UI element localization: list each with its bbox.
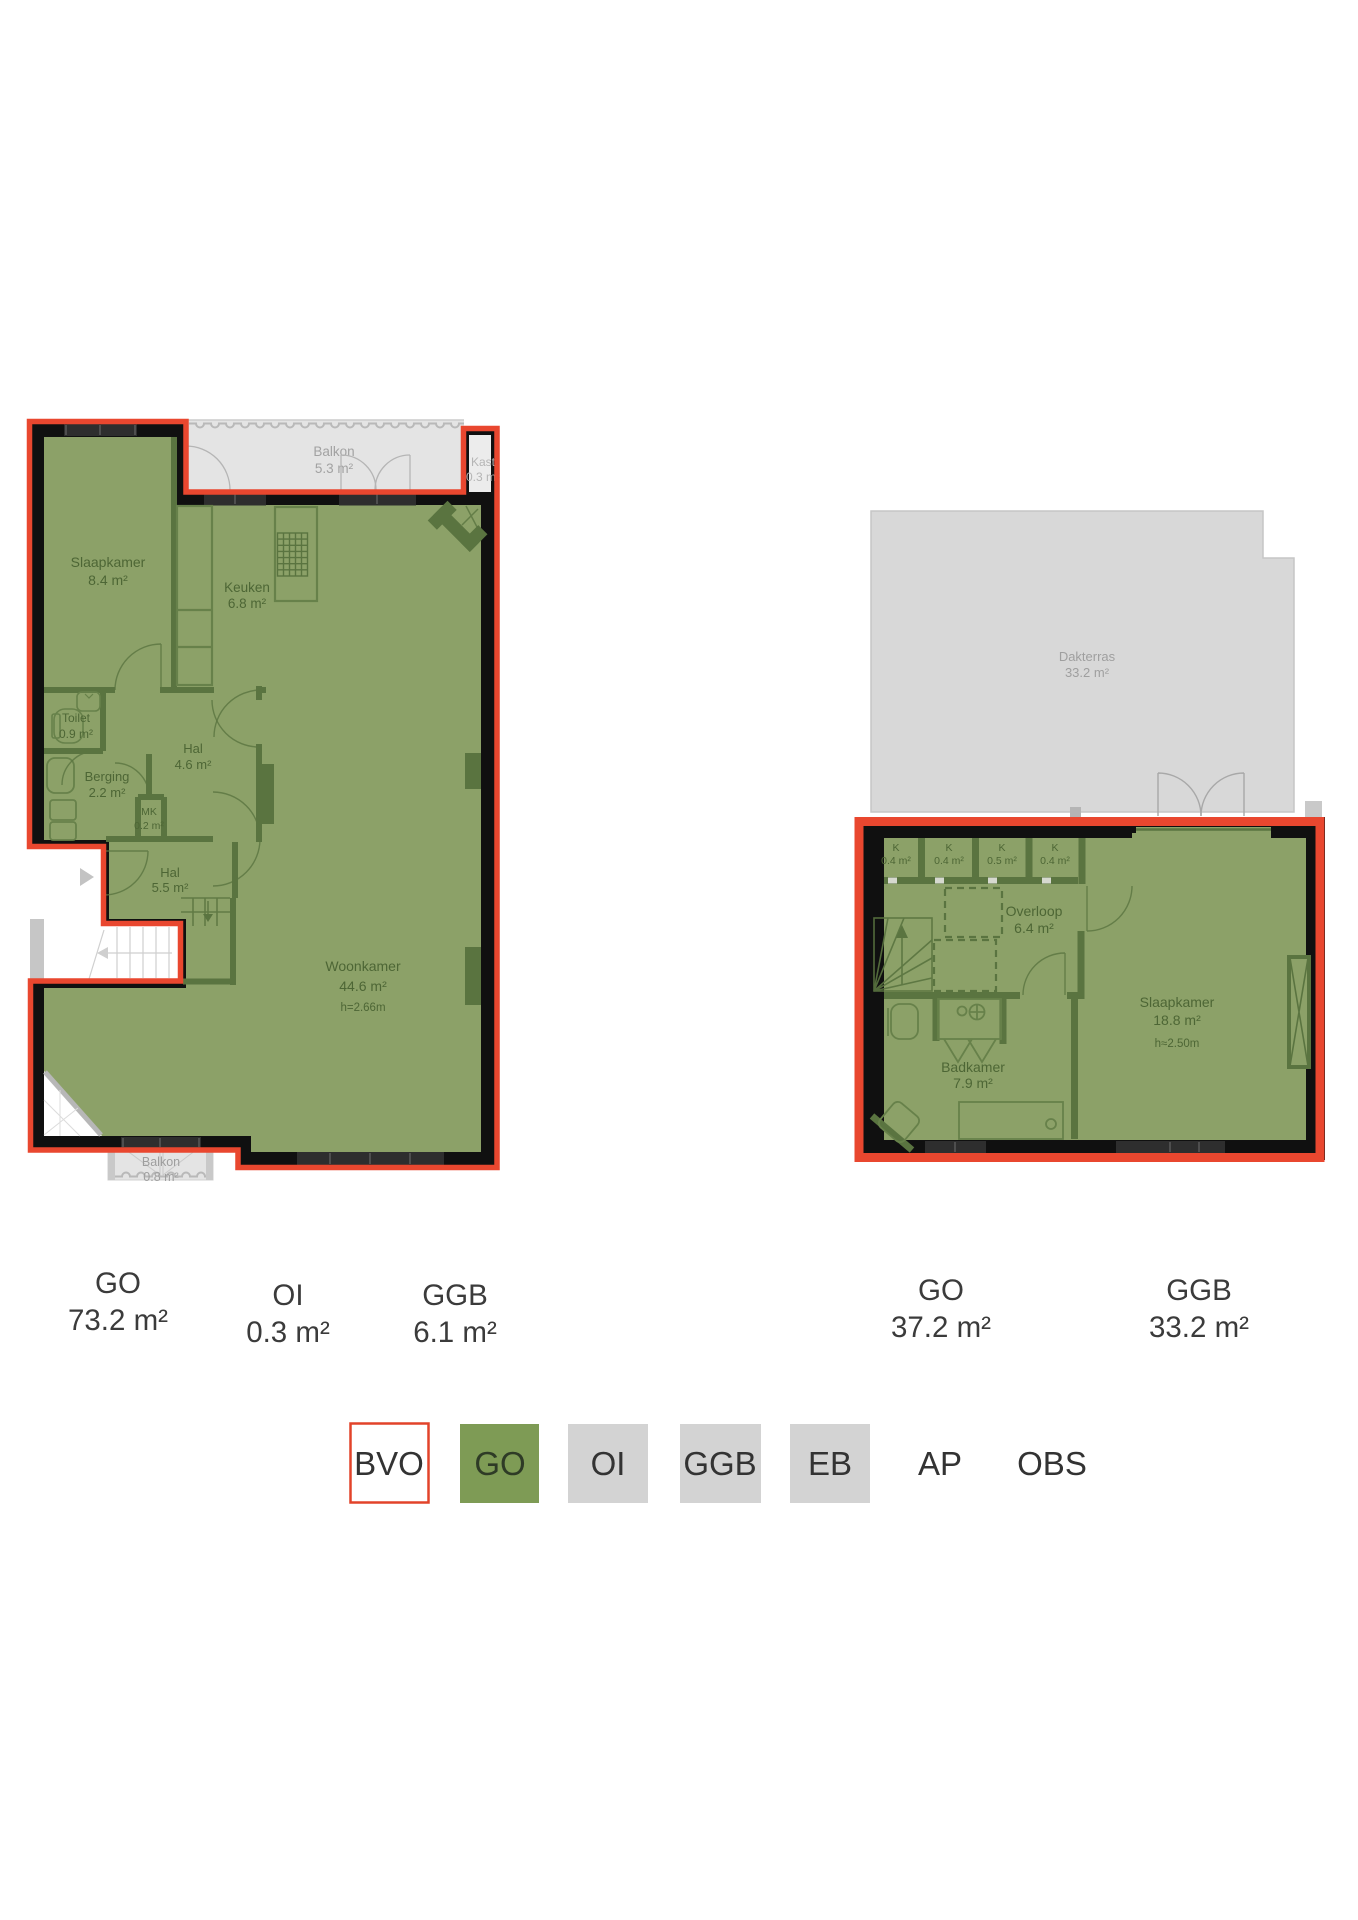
svg-text:Kast: Kast [471,455,496,469]
svg-text:K: K [945,842,952,854]
svg-text:6.8 m²: 6.8 m² [228,596,267,611]
svg-text:GGB: GGB [422,1279,488,1312]
svg-text:0.4 m²: 0.4 m² [934,855,964,867]
svg-text:7.9 m²: 7.9 m² [953,1075,993,1091]
svg-text:8.4 m²: 8.4 m² [88,572,128,588]
svg-text:6.4 m²: 6.4 m² [1014,920,1054,936]
svg-text:Keuken: Keuken [224,580,270,595]
svg-text:Woonkamer: Woonkamer [325,958,401,974]
svg-text:Toilet: Toilet [62,711,91,725]
svg-text:h=2.66m: h=2.66m [340,1002,385,1014]
svg-text:GO: GO [95,1267,141,1300]
svg-text:0.4 m²: 0.4 m² [881,855,911,867]
svg-text:0.8 m²: 0.8 m² [143,1170,178,1184]
svg-text:0.5 m²: 0.5 m² [987,855,1017,867]
svg-text:Hal: Hal [160,865,180,880]
svg-text:BVO: BVO [354,1445,424,1482]
svg-text:0.2 m²: 0.2 m² [134,820,164,832]
svg-text:MK: MK [141,806,157,818]
svg-text:EB: EB [808,1445,852,1482]
svg-text:73.2 m²: 73.2 m² [68,1304,168,1337]
svg-text:2.2 m²: 2.2 m² [89,785,127,800]
svg-text:Balkon: Balkon [313,444,354,459]
svg-text:GGB: GGB [1166,1274,1232,1307]
svg-text:Overloop: Overloop [1006,903,1063,919]
svg-text:AP: AP [918,1445,962,1482]
svg-text:GO: GO [474,1445,525,1482]
svg-text:5.3 m²: 5.3 m² [315,461,354,476]
svg-text:Slaapkamer: Slaapkamer [1140,994,1215,1010]
svg-text:K: K [998,842,1005,854]
svg-text:5.5 m²: 5.5 m² [152,880,190,895]
svg-text:0.3 m²: 0.3 m² [246,1316,330,1349]
svg-text:GGB: GGB [683,1445,756,1482]
svg-text:GO: GO [918,1274,964,1307]
svg-text:OI: OI [591,1445,626,1482]
svg-text:Berging: Berging [85,769,130,784]
svg-text:K: K [1051,842,1058,854]
svg-text:OI: OI [272,1279,303,1312]
svg-text:Badkamer: Badkamer [941,1059,1005,1075]
svg-text:K: K [892,842,899,854]
svg-text:OBS: OBS [1017,1445,1087,1482]
svg-text:44.6 m²: 44.6 m² [339,978,387,994]
svg-text:0.9 m²: 0.9 m² [59,727,93,741]
svg-text:33.2 m²: 33.2 m² [1149,1311,1249,1344]
svg-text:0.4 m²: 0.4 m² [1040,855,1070,867]
svg-text:33.2 m²: 33.2 m² [1065,665,1110,680]
svg-text:Slaapkamer: Slaapkamer [71,554,146,570]
svg-text:Balkon: Balkon [142,1155,180,1169]
svg-text:6.1 m²: 6.1 m² [413,1316,497,1349]
svg-text:Dakterras: Dakterras [1059,649,1116,664]
svg-text:4.6 m²: 4.6 m² [175,757,213,772]
svg-text:37.2 m²: 37.2 m² [891,1311,991,1344]
svg-text:h≈2.50m: h≈2.50m [1155,1038,1200,1050]
svg-text:Hal: Hal [183,741,203,756]
svg-text:18.8 m²: 18.8 m² [1153,1012,1201,1028]
